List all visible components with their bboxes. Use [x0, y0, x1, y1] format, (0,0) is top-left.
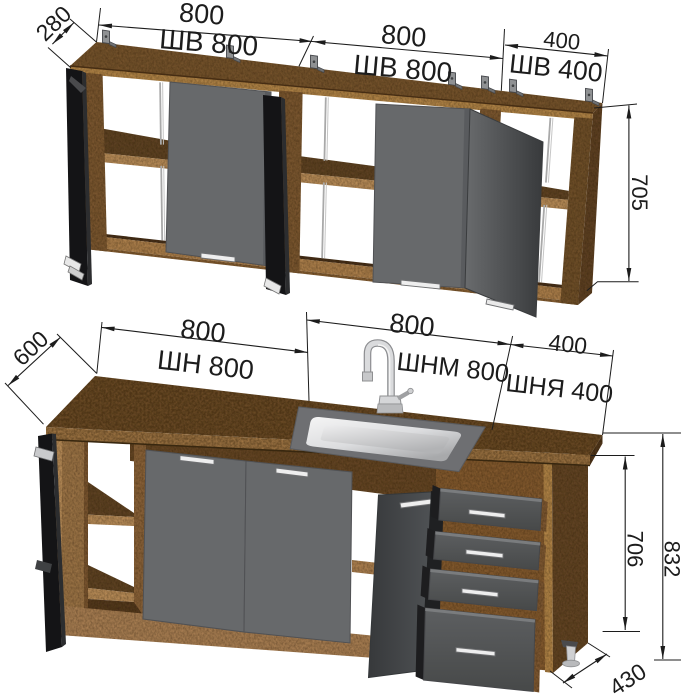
svg-text:800: 800 — [179, 314, 227, 349]
svg-text:705: 705 — [627, 174, 652, 211]
svg-text:800: 800 — [380, 19, 428, 53]
svg-text:832: 832 — [660, 541, 682, 578]
svg-text:400: 400 — [542, 26, 581, 55]
svg-text:800: 800 — [388, 308, 436, 343]
svg-text:706: 706 — [623, 531, 648, 568]
svg-text:400: 400 — [547, 329, 588, 359]
